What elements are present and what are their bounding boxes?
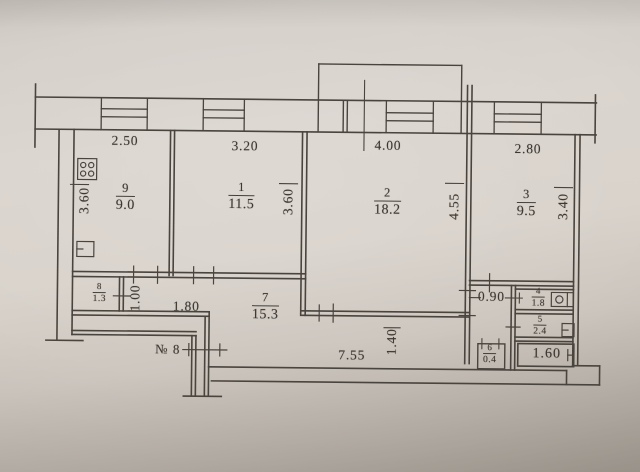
room-label-corridor: 7 15.3 xyxy=(252,291,279,323)
room-area: 0.4 xyxy=(483,354,496,366)
room-area: 1.3 xyxy=(93,293,106,305)
left-outer-wall xyxy=(46,129,85,340)
entrance-walls xyxy=(71,310,222,396)
room-area: 2.4 xyxy=(533,326,546,338)
dimension-marks xyxy=(69,179,572,329)
room-number: 7 xyxy=(252,291,279,306)
bottom-outer-wall xyxy=(208,362,599,385)
dimension-room3-width: 2.80 xyxy=(514,141,541,157)
window-symbol xyxy=(386,101,433,133)
window-symbol xyxy=(101,98,147,130)
room-area: 15.3 xyxy=(252,306,279,323)
room-number: 5 xyxy=(533,315,546,327)
dimension-hall-width: 1.80 xyxy=(173,298,200,314)
dimension-room2-depth: 4.55 xyxy=(446,193,462,220)
dimension-room3-depth: 3.40 xyxy=(555,193,571,220)
room-number: 3 xyxy=(517,188,536,203)
room-label-wc: 4 1.8 xyxy=(532,287,546,310)
window-symbol xyxy=(203,99,244,131)
door-marks xyxy=(113,266,521,327)
floor-plan-lines xyxy=(0,0,640,472)
dimension-closet-depth: 1.00 xyxy=(127,285,143,312)
room-area: 18.2 xyxy=(374,202,401,219)
floor-plan: 2.50 3.20 4.00 2.80 3.60 3.60 4.55 3.40 … xyxy=(0,0,640,472)
room-label-pantry: 6 0.4 xyxy=(483,343,497,366)
partition-walls xyxy=(168,82,580,365)
room-label-kitchen: 9 9.0 xyxy=(116,182,135,214)
room-label-closet: 8 1.3 xyxy=(93,282,107,305)
dimension-room2-width: 4.00 xyxy=(374,138,401,154)
room-number: 1 xyxy=(228,181,254,196)
room-number: 2 xyxy=(374,186,401,201)
room-label-room1: 1 11.5 xyxy=(228,181,254,213)
stove-icon xyxy=(78,158,97,179)
floor-plan-photo: 2.50 3.20 4.00 2.80 3.60 3.60 4.55 3.40 … xyxy=(0,0,640,472)
dimension-passage-width: 0.90 xyxy=(478,289,505,305)
dimension-corridor-length: 7.55 xyxy=(338,347,365,363)
sink-icon xyxy=(77,241,94,256)
room-area: 11.5 xyxy=(228,196,254,213)
washbasin-icon xyxy=(551,292,573,306)
dimension-kitchen-width: 2.50 xyxy=(111,133,138,149)
room-area: 9.0 xyxy=(116,197,135,214)
dimension-bathtub-length: 1.60 xyxy=(532,346,561,362)
room-number: 4 xyxy=(532,287,545,299)
room-label-room2: 2 18.2 xyxy=(374,186,401,218)
room-number: 9 xyxy=(116,182,135,197)
window-symbol xyxy=(494,102,541,134)
dimension-room1-depth: 3.60 xyxy=(280,188,296,215)
room-number: 6 xyxy=(483,343,496,355)
apartment-number: № 8 xyxy=(155,341,180,357)
room-label-room3: 3 9.5 xyxy=(517,188,536,220)
dimension-corridor-width: 1.40 xyxy=(384,328,400,355)
room-label-bathroom: 5 2.4 xyxy=(533,315,547,338)
dimension-kitchen-depth: 3.60 xyxy=(76,187,92,214)
dimension-room1-width: 3.20 xyxy=(231,138,258,154)
room-area: 1.8 xyxy=(532,298,545,310)
room-number: 8 xyxy=(93,282,106,294)
room-area: 9.5 xyxy=(517,203,536,220)
